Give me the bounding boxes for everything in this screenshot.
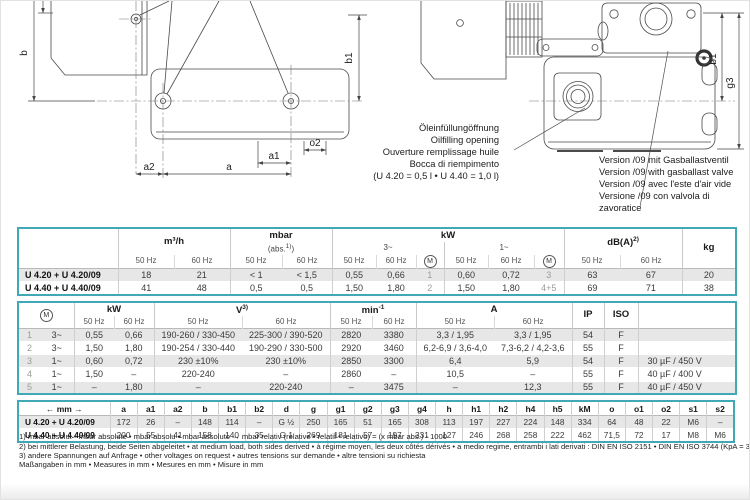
table-cell: 334 — [571, 415, 598, 429]
table-row: 31~0,600,72230 ±10%230 ±10%285033006,45,… — [18, 355, 736, 368]
hz-label: 50 Hz — [416, 316, 494, 328]
version-09-note: Version /09 mit Gasballastventil Version… — [599, 154, 749, 214]
hz-label: 50 Hz — [230, 255, 282, 269]
table-cell: 0,66 — [114, 328, 154, 341]
measures-note: Maßangaben in mm • Measures in mm • Mesu… — [19, 460, 263, 469]
model-column-header — [18, 228, 118, 268]
table-cell: 54 — [572, 355, 604, 368]
table-cell: 1 — [416, 268, 444, 282]
table-cell: 3 — [18, 355, 40, 368]
voltage-header: V3) — [154, 302, 330, 316]
table-cell: 2920 — [330, 342, 372, 355]
dimension-column-header: b2 — [246, 401, 273, 415]
table-cell: – — [372, 368, 416, 381]
table-cell: 3460 — [372, 342, 416, 355]
hz-label: 60 Hz — [372, 316, 416, 328]
dimension-column-header: g3 — [381, 401, 408, 415]
table-cell: 1,80 — [114, 342, 154, 355]
table-cell: 6,2-6,9 / 3,6-4,0 — [416, 342, 494, 355]
hz-label: 60 Hz — [494, 316, 572, 328]
table-cell: 3,3 / 1,95 — [416, 328, 494, 341]
table-cell: F — [604, 342, 638, 355]
table-cell: 1,50 — [74, 342, 114, 355]
dimension-column-header: o1 — [625, 401, 652, 415]
page-bottom-shadow — [1, 483, 749, 499]
table-cell: 197 — [463, 415, 490, 429]
motor-data-table: M kW V3) min-1 A IP ISO 50 Hz 60 Hz 50 H… — [17, 301, 737, 395]
table-row: 13~0,550,66190-260 / 330-450225-300 / 39… — [18, 328, 736, 341]
table-cell: 40 µF / 450 V — [638, 381, 736, 394]
dim-label-g3: g3 — [725, 77, 736, 89]
dimension-column-header: o — [598, 401, 625, 415]
table-cell: 4 — [18, 368, 40, 381]
table-cell: 3300 — [372, 355, 416, 368]
table-cell: 113 — [436, 415, 463, 429]
table-row: 41~1,50–220-240–2860–10,5–55F40 µF / 400… — [18, 368, 736, 381]
table-cell: 55 — [572, 342, 604, 355]
mm-unit-header: ← mm → — [18, 401, 110, 415]
table-cell: F — [604, 328, 638, 341]
table-cell: 71 — [620, 282, 682, 296]
dim-label-b: b — [19, 50, 30, 56]
dim-label-b1-left: b1 — [344, 52, 355, 64]
table-cell: 3~ — [40, 342, 74, 355]
table-cell: 250 — [300, 415, 327, 429]
table-row: 51~–1,80–220-240–3475–12,355F40 µF / 450… — [18, 381, 736, 394]
datasheet-page: b b1 o2 a1 a a2 — [0, 0, 750, 500]
table-cell: F — [604, 355, 638, 368]
table-cell: < 1,5 — [282, 268, 332, 282]
table-cell: 220-240 — [242, 381, 330, 394]
table-cell: 38 — [682, 282, 736, 296]
table-cell: 0,5 — [230, 282, 282, 296]
table-cell: – — [494, 368, 572, 381]
table-cell: 148 — [544, 415, 571, 429]
table-cell: – — [242, 368, 330, 381]
table-cell: 0,66 — [376, 268, 416, 282]
dimension-column-header: a1 — [137, 401, 164, 415]
table-cell: 225-300 / 390-520 — [242, 328, 330, 341]
hz-label: 60 Hz — [488, 255, 534, 269]
dim-label-a2: a2 — [143, 162, 155, 173]
pump-plan-view — [51, 1, 349, 139]
version-note-line: Version /09 mit Gasballastventil — [599, 154, 749, 166]
oil-note-line: Ouverture remplissage huile — [373, 146, 499, 158]
table-cell: 22 — [653, 415, 680, 429]
oil-note-line: Oilfilling opening — [373, 134, 499, 146]
table-cell: – — [114, 368, 154, 381]
dim-label-a: a — [226, 162, 232, 173]
table-cell: 224 — [517, 415, 544, 429]
dimension-column-header: kM — [571, 401, 598, 415]
motor-variant-icon: M — [534, 255, 564, 269]
hz-label: 50 Hz — [564, 255, 620, 269]
spec-tables: m³/h mbar kW dB(A)2) kg (abs.1)) 3~ 1~ 5… — [17, 227, 735, 443]
table-cell: 48 — [625, 415, 652, 429]
table-cell: 26 — [137, 415, 164, 429]
table-cell: 148 — [191, 415, 218, 429]
table-cell: 0,60 — [444, 268, 488, 282]
table-cell: 230 ±10% — [242, 355, 330, 368]
footnote-1: 1) mbar absolut • mbar absolute • mbar a… — [19, 432, 733, 442]
table-cell: 7,3-6,2 / 4,2-3,6 — [494, 342, 572, 355]
table-cell: < 1 — [230, 268, 282, 282]
dim-label-a1: a1 — [268, 151, 280, 162]
dimension-column-header: a2 — [164, 401, 191, 415]
dimension-column-header: s1 — [680, 401, 707, 415]
table-cell: 227 — [490, 415, 517, 429]
table-cell: 20 — [682, 268, 736, 282]
table-cell: 1,80 — [488, 282, 534, 296]
capacitor-column-header — [638, 302, 736, 328]
table-cell: 1~ — [40, 381, 74, 394]
hz-label: 60 Hz — [242, 316, 330, 328]
dim-label-o2: o2 — [309, 138, 321, 149]
hz-label: 60 Hz — [282, 255, 332, 269]
dimension-column-header: b1 — [219, 401, 246, 415]
table-cell: 55 — [572, 368, 604, 381]
table-cell — [638, 328, 736, 341]
oil-note-line: (U 4.20 = 0,5 l • U 4.40 = 1,0 l) — [373, 170, 499, 182]
table-cell: 63 — [564, 268, 620, 282]
table-cell: 21 — [174, 268, 230, 282]
table-cell: 0,5 — [282, 282, 332, 296]
version-note-line: Versione /09 con valvola di zavoratice — [599, 190, 749, 214]
table-cell: 5,9 — [494, 355, 572, 368]
table-cell: – — [154, 381, 242, 394]
dimensions-header-row: ← mm → aa1a2bb1b2dgg1g2g3g4hh1h2h4h5kMoo… — [18, 401, 734, 415]
table-cell: 3475 — [372, 381, 416, 394]
table-cell: 51 — [354, 415, 381, 429]
table-cell: 41 — [118, 282, 174, 296]
pressure-header: mbar — [230, 228, 332, 242]
weight-header: kg — [682, 228, 736, 268]
table-cell: 3~ — [40, 328, 74, 341]
table-cell: 69 — [564, 282, 620, 296]
hz-label: 60 Hz — [620, 255, 682, 269]
table-cell: 0,60 — [74, 355, 114, 368]
table-row: U 4.20 + U 4.20/0917226–148114–G ½250165… — [18, 415, 734, 429]
table-cell — [638, 342, 736, 355]
table-cell: 1,50 — [444, 282, 488, 296]
version-note-line: Version /09 avec l'este d'air vide — [599, 178, 749, 190]
dimension-column-header: h5 — [544, 401, 571, 415]
table-cell: 2820 — [330, 328, 372, 341]
table-cell: 3,3 / 1,95 — [494, 328, 572, 341]
three-phase-subheader: 3~ — [332, 242, 444, 255]
table-cell: 5 — [18, 381, 40, 394]
dimension-column-header: g1 — [327, 401, 354, 415]
table-cell: – — [164, 415, 191, 429]
table-cell: 55 — [572, 381, 604, 394]
table-cell: 0,72 — [114, 355, 154, 368]
hz-label: 60 Hz — [174, 255, 230, 269]
table-cell: 0,55 — [74, 328, 114, 341]
table-cell: – — [330, 381, 372, 394]
footnote-2: 2) bei mittlerer Belastung, beide Seiten… — [19, 442, 733, 452]
table-cell: 190-260 / 330-450 — [154, 328, 242, 341]
table-row: 23~1,501,80190-254 / 330-440190-290 / 33… — [18, 342, 736, 355]
table-cell: 230 ±10% — [154, 355, 242, 368]
table-cell: 2 — [416, 282, 444, 296]
motor-variant-icon: M — [416, 255, 444, 269]
table-cell: 4+5 — [534, 282, 564, 296]
table-cell: 2850 — [330, 355, 372, 368]
dimension-column-header: h1 — [463, 401, 490, 415]
oil-note-line: Bocca di riempimento — [373, 158, 499, 170]
power-header: kW — [332, 228, 564, 242]
table-cell: 6,4 — [416, 355, 494, 368]
table-cell: – — [74, 381, 114, 394]
pressure-abs-subheader: (abs.1)) — [230, 242, 332, 255]
table-cell: 3380 — [372, 328, 416, 341]
hz-label: 50 Hz — [74, 316, 114, 328]
hz-label: 50 Hz — [332, 255, 376, 269]
side-dimensions — [703, 13, 744, 149]
table-cell: 48 — [174, 282, 230, 296]
table-cell: 165 — [327, 415, 354, 429]
single-phase-subheader: 1~ — [444, 242, 564, 255]
table-cell: 1,80 — [114, 381, 154, 394]
table-cell: 2 — [18, 342, 40, 355]
performance-table: m³/h mbar kW dB(A)2) kg (abs.1)) 3~ 1~ 5… — [17, 227, 737, 296]
current-header: A — [416, 302, 572, 316]
dimension-column-header: a — [110, 401, 137, 415]
table-row: U 4.40 + U 4.40/0941480,50,51,501,8021,5… — [18, 282, 736, 296]
table-cell: 10,5 — [416, 368, 494, 381]
table-cell: 1~ — [40, 355, 74, 368]
oil-note-line: Öleinfüllungöffnung — [373, 122, 499, 134]
dimension-column-header: g2 — [354, 401, 381, 415]
dimension-column-header: h4 — [517, 401, 544, 415]
table-cell: – — [416, 381, 494, 394]
table-cell: 220-240 — [154, 368, 242, 381]
table-cell: 1,80 — [376, 282, 416, 296]
table-cell: 190-254 / 330-440 — [154, 342, 242, 355]
table-cell: 1 — [18, 328, 40, 341]
dimension-column-header: s2 — [707, 401, 734, 415]
table-cell: U 4.20 + U 4.20/09 — [18, 268, 118, 282]
hz-label: 60 Hz — [114, 316, 154, 328]
hz-label: 60 Hz — [376, 255, 416, 269]
dimension-column-header: d — [273, 401, 300, 415]
noise-header: dB(A)2) — [564, 228, 682, 255]
flow-header: m³/h — [118, 228, 230, 255]
table-cell: 190-290 / 330-500 — [242, 342, 330, 355]
table-cell: 0,72 — [488, 268, 534, 282]
table-cell: U 4.20 + U 4.20/09 — [18, 415, 110, 429]
table-row: U 4.20 + U 4.20/091821< 1< 1,50,550,6610… — [18, 268, 736, 282]
table-cell: 1,50 — [332, 282, 376, 296]
dimension-column-header: h2 — [490, 401, 517, 415]
speed-header: min-1 — [330, 302, 416, 316]
table-cell: U 4.40 + U 4.40/09 — [18, 282, 118, 296]
dimension-column-header: o2 — [653, 401, 680, 415]
motor-variant-column-header: M — [18, 302, 74, 328]
table-cell: 12,3 — [494, 381, 572, 394]
table-cell: 64 — [598, 415, 625, 429]
performance-table-body: U 4.20 + U 4.20/091821< 1< 1,50,550,6610… — [18, 268, 736, 295]
motor-data-table-body: 13~0,550,66190-260 / 330-450225-300 / 39… — [18, 328, 736, 394]
hz-label: 50 Hz — [118, 255, 174, 269]
table-cell: 3 — [534, 268, 564, 282]
iso-header: ISO — [604, 302, 638, 328]
footnotes: 1) mbar absolut • mbar absolute • mbar a… — [19, 432, 733, 461]
table-cell: 1~ — [40, 368, 74, 381]
table-cell: M6 — [680, 415, 707, 429]
table-cell: 308 — [408, 415, 435, 429]
table-cell: F — [604, 381, 638, 394]
table-cell: 172 — [110, 415, 137, 429]
dimension-column-header: g4 — [408, 401, 435, 415]
dimension-column-header: g — [300, 401, 327, 415]
dimension-column-header: h — [436, 401, 463, 415]
table-cell: 40 µF / 400 V — [638, 368, 736, 381]
power-header: kW — [74, 302, 154, 316]
oil-filling-note: Öleinfüllungöffnung Oilfilling opening O… — [373, 122, 499, 182]
table-cell: 18 — [118, 268, 174, 282]
table-cell: F — [604, 368, 638, 381]
table-cell: G ½ — [273, 415, 300, 429]
dim-label-b1-right: b1 — [708, 53, 719, 65]
table-cell: 2860 — [330, 368, 372, 381]
table-cell: 165 — [381, 415, 408, 429]
table-cell: 114 — [219, 415, 246, 429]
table-cell: – — [707, 415, 734, 429]
dimension-column-header: b — [191, 401, 218, 415]
table-cell: 1,50 — [74, 368, 114, 381]
hz-label: 50 Hz — [444, 255, 488, 269]
table-cell: 67 — [620, 268, 682, 282]
hz-label: 50 Hz — [330, 316, 372, 328]
ip-header: IP — [572, 302, 604, 328]
hz-label: 50 Hz — [154, 316, 242, 328]
plan-center-lines — [97, 1, 363, 178]
table-cell: 0,55 — [332, 268, 376, 282]
table-cell: – — [246, 415, 273, 429]
version-note-line: Version /09 with gasballast valve — [599, 166, 749, 178]
table-cell: 54 — [572, 328, 604, 341]
table-cell: 30 µF / 450 V — [638, 355, 736, 368]
